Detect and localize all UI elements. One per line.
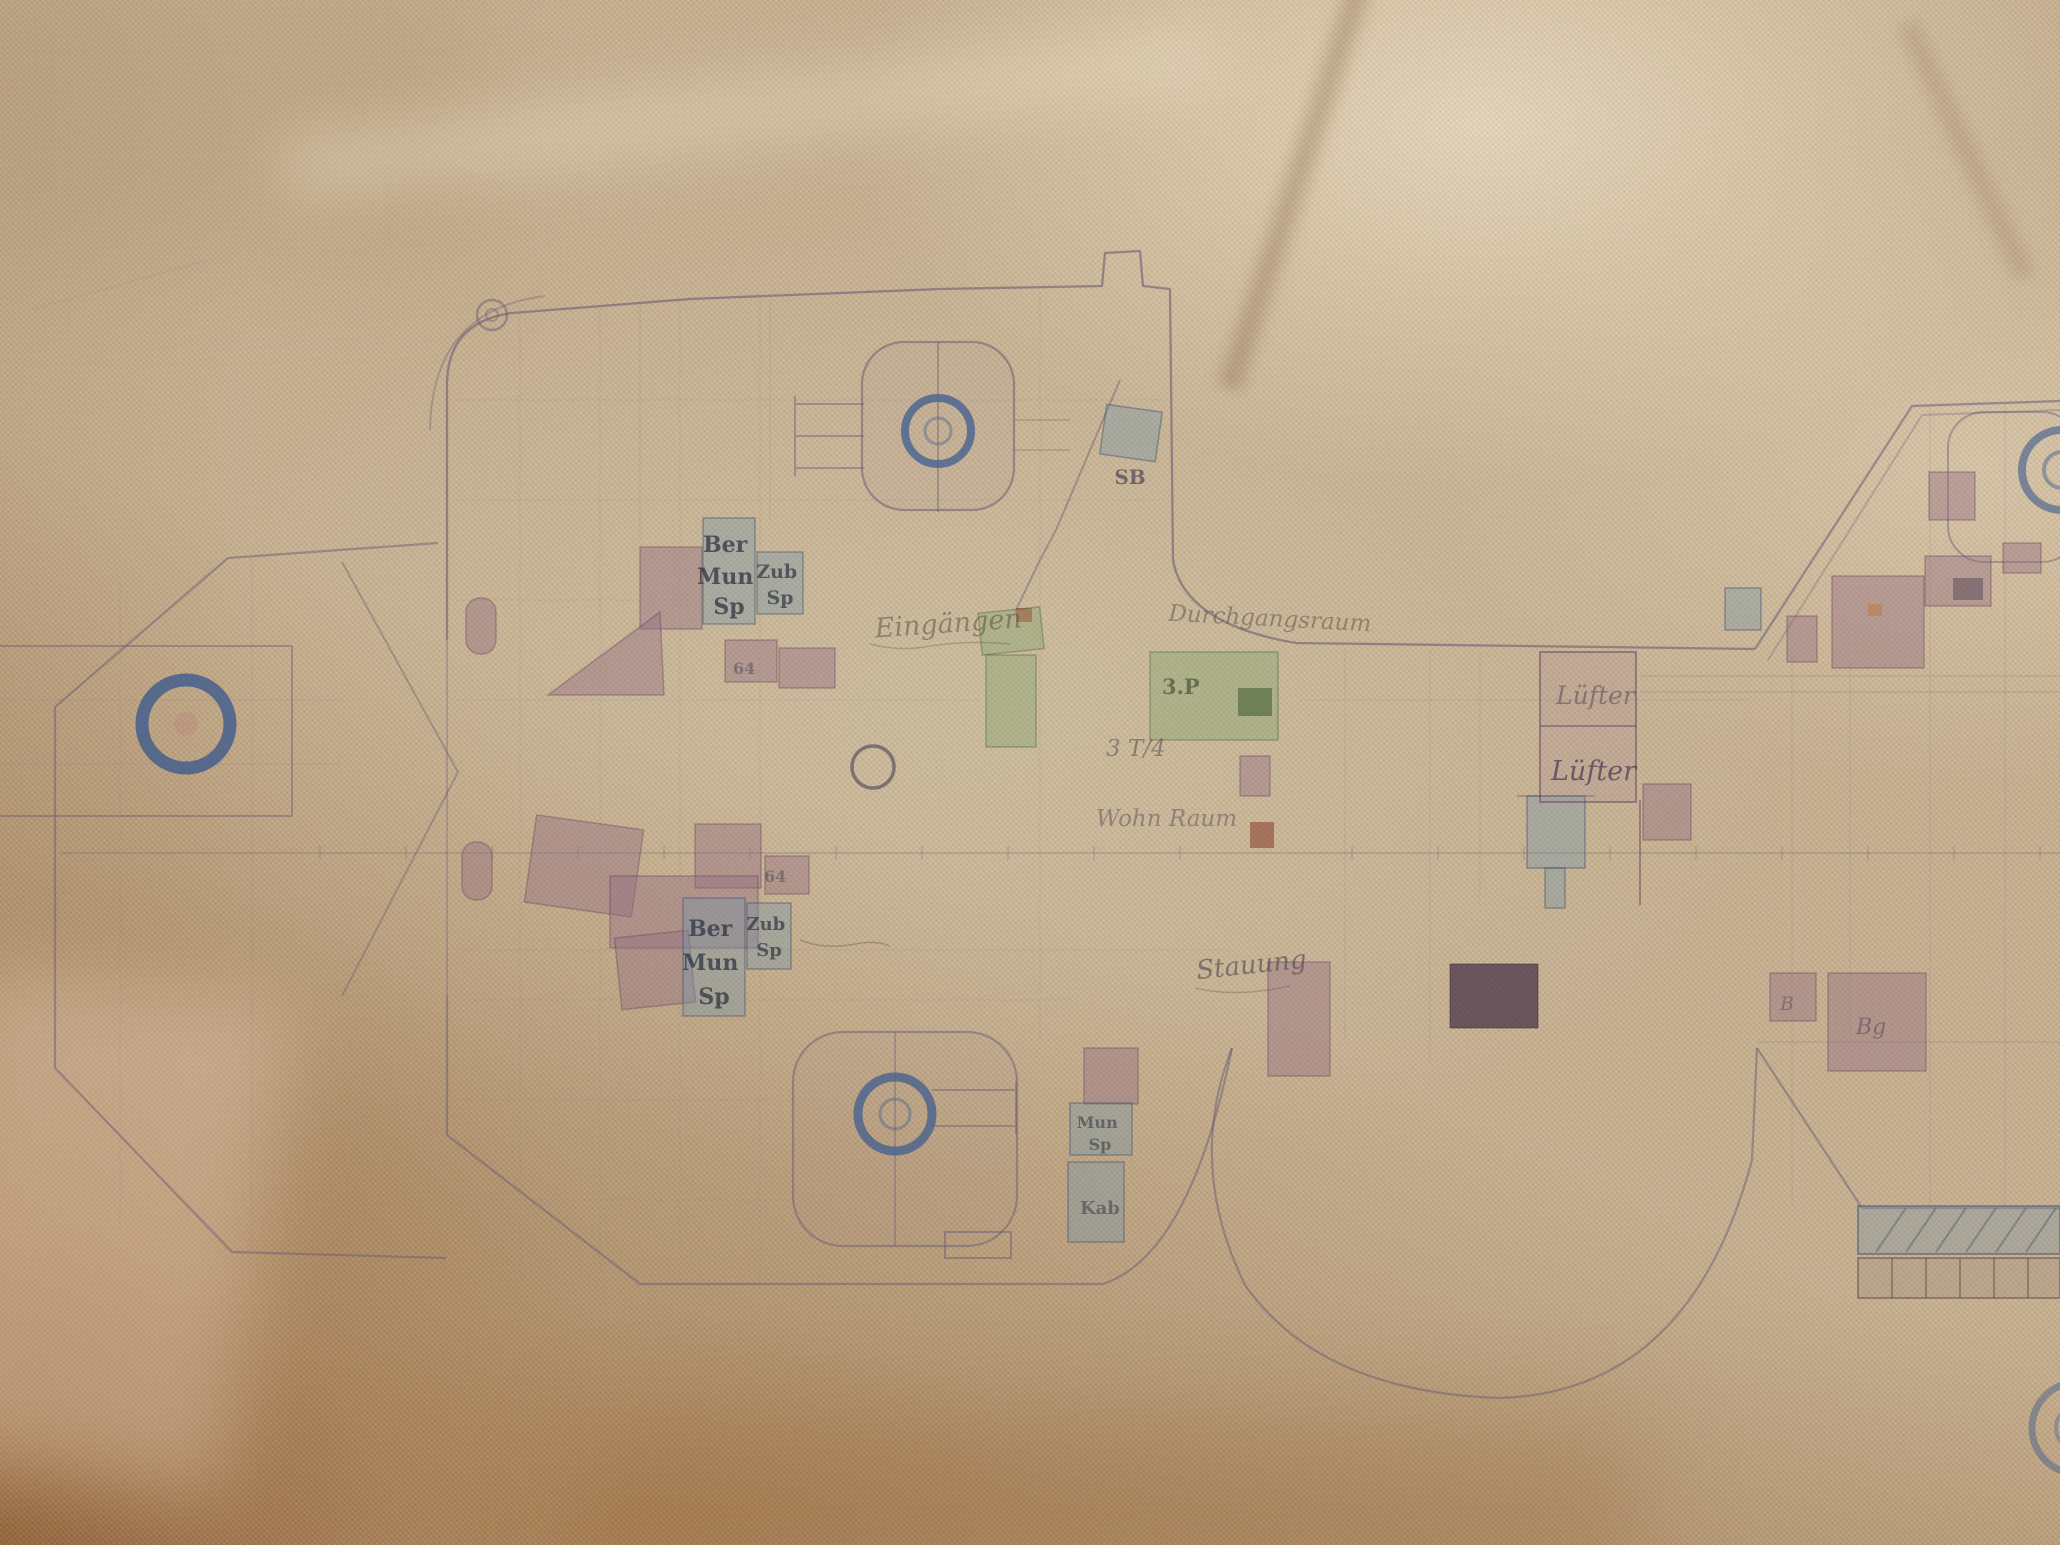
label-64-b: 64 — [764, 867, 786, 886]
aft-barbette-ring — [2022, 430, 2060, 510]
label-wohn-raum: Wohn Raum — [1096, 806, 1237, 832]
vent-pedestal-stem — [1545, 868, 1565, 908]
room — [779, 648, 835, 688]
main-deckhouse-outline — [430, 251, 2060, 1398]
room — [640, 547, 702, 629]
room — [1787, 616, 1817, 662]
label-durchgangsraum: Durchgangsraum — [1167, 601, 1372, 638]
label-sb: SB — [1114, 465, 1145, 489]
orange-mark — [1868, 604, 1882, 616]
label-b: B — [1779, 993, 1794, 1015]
label-kab: Kab — [1080, 1198, 1120, 1219]
label-luefter-2: Lüfter — [1550, 756, 1638, 787]
left-barbette-outline — [0, 543, 458, 1258]
aft-barbette-ring-inner — [2044, 452, 2060, 488]
stern-walkway-bars — [1858, 1206, 2060, 1298]
signal-flag-box — [1100, 404, 1162, 461]
room-green-dark — [1238, 688, 1272, 716]
label-3p: 3.P — [1162, 674, 1200, 699]
deck-fitting-pill — [466, 598, 496, 654]
room-dark — [1450, 964, 1538, 1028]
room — [2003, 543, 2041, 573]
photograph-of-deck-plan: Ber Mun Sp Zub Sp SB Eingängen Durchgang… — [0, 0, 2060, 1545]
room-detail — [1953, 578, 1983, 600]
room — [1832, 576, 1924, 668]
aft-lower-ring-inner — [2056, 1406, 2060, 1450]
label-3t4: 3 T/4 — [1106, 736, 1166, 762]
deck-grid-lines — [0, 258, 2060, 1283]
deck-hatch-circle — [852, 746, 894, 788]
vent-pedestal — [1527, 796, 1585, 868]
room — [1240, 756, 1270, 796]
deck-fitting-pill — [462, 842, 492, 900]
deck-plan-drawing: Ber Mun Sp Zub Sp SB Eingängen Durchgang… — [0, 0, 2060, 1545]
room-green — [986, 655, 1036, 747]
label-luefter-1: Lüfter — [1555, 681, 1637, 710]
turret-aft — [793, 1032, 1017, 1258]
room — [1929, 472, 1975, 520]
room-triangle — [548, 612, 664, 695]
label-64-a: 64 — [733, 659, 755, 678]
turret-forward-barrels — [795, 396, 864, 476]
room-small — [1725, 588, 1761, 630]
ship-centerline — [60, 846, 2060, 860]
room — [1084, 1048, 1138, 1104]
mast-guy-line — [1015, 380, 1120, 612]
room — [1643, 784, 1691, 840]
room-rust — [1250, 822, 1274, 848]
room — [1268, 962, 1330, 1076]
label-bg: Bg — [1855, 1015, 1886, 1040]
turret-forward — [795, 342, 1070, 512]
barbette-center-mark — [174, 712, 198, 736]
